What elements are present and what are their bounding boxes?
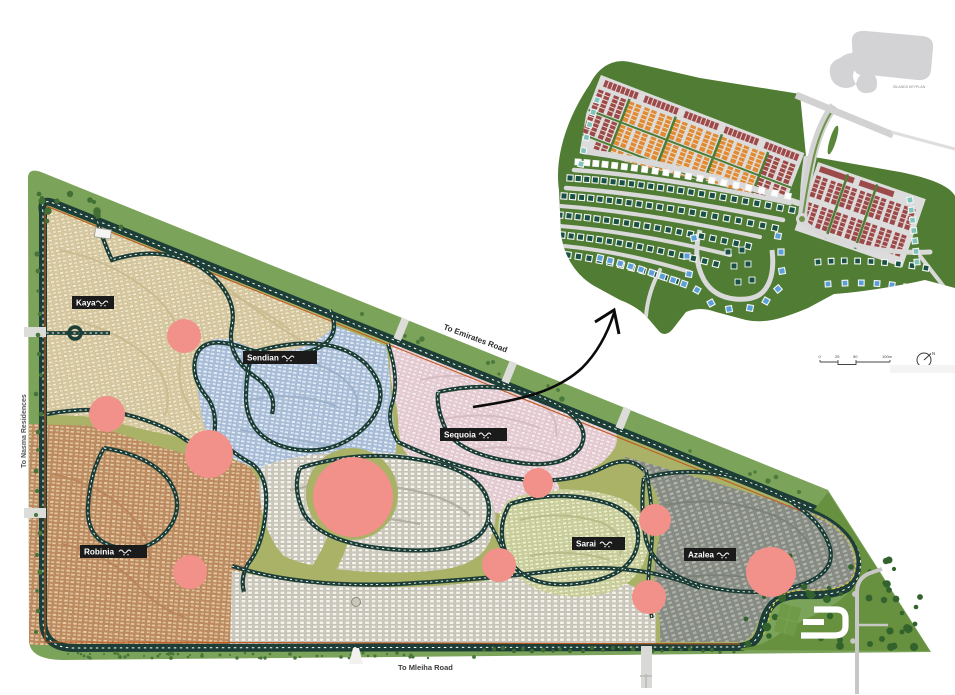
svg-text:Kaya: Kaya <box>76 299 96 308</box>
svg-text:ISLANDS KEYPLAN: ISLANDS KEYPLAN <box>893 85 926 89</box>
svg-text:25: 25 <box>835 354 840 359</box>
svg-text:N: N <box>932 351 935 356</box>
svg-text:To Nasma Residences: To Nasma Residences <box>21 394 28 468</box>
svg-text:To Mleiha Road: To Mleiha Road <box>398 663 453 672</box>
svg-text:Azalea: Azalea <box>688 551 714 560</box>
svg-text:Sendian: Sendian <box>247 354 279 363</box>
svg-text:Sequoia: Sequoia <box>444 431 476 440</box>
svg-text:100m: 100m <box>882 354 893 359</box>
svg-text:0: 0 <box>819 354 822 359</box>
svg-text:50: 50 <box>853 354 858 359</box>
svg-text:Robinia: Robinia <box>84 548 114 557</box>
svg-text:Sarai: Sarai <box>576 540 596 549</box>
